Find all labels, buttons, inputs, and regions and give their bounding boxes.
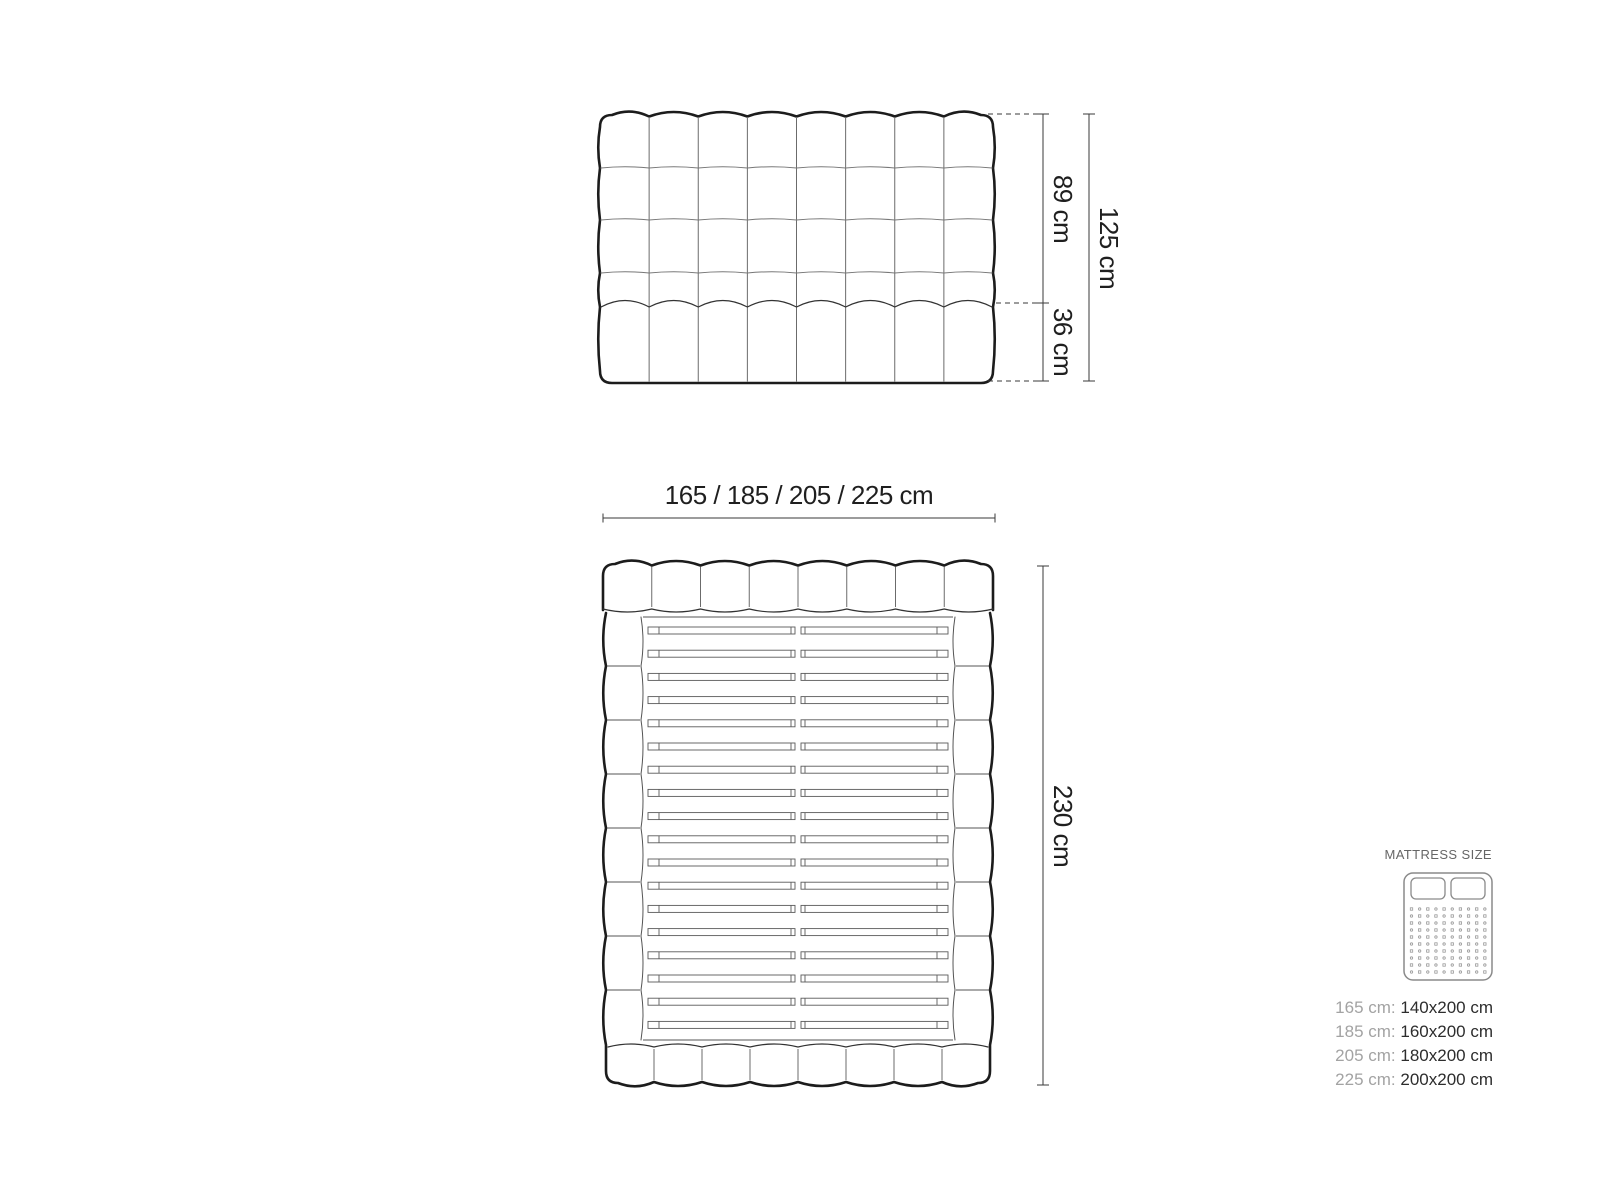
- dim-label-lower-height: 36 cm: [1048, 308, 1078, 376]
- frame-width-label: 165 cm:: [1335, 998, 1395, 1017]
- mattress-tufting-dots: [1410, 908, 1486, 973]
- mattress-size-row: 185 cm: 160x200 cm: [1300, 1020, 1493, 1044]
- headboard-front-view: [598, 112, 995, 383]
- dim-label-total-height: 125 cm: [1094, 207, 1124, 289]
- front-dimension-annotations: 89 cm 36 cm 125 cm: [988, 114, 1124, 381]
- frame-width-label: 225 cm:: [1335, 1070, 1395, 1089]
- dim-label-upper-height: 89 cm: [1048, 175, 1078, 243]
- dim-label-width-options: 165 / 185 / 205 / 225 cm: [665, 480, 933, 510]
- frame-width-label: 205 cm:: [1335, 1046, 1395, 1065]
- bed-top-view: [603, 561, 993, 1087]
- bed-dimensions-sheet: 89 cm 36 cm 125 cm 165 / 185 / 205 / 225…: [0, 0, 1600, 1200]
- mattress-size-row: 165 cm: 140x200 cm: [1300, 996, 1493, 1020]
- mattress-size-value: 160x200 cm: [1400, 1022, 1493, 1041]
- pillow-right-icon: [1451, 878, 1485, 899]
- mattress-size-row: 205 cm: 180x200 cm: [1300, 1044, 1493, 1068]
- pillow-left-icon: [1411, 878, 1445, 899]
- mattress-size-table: 165 cm: 140x200 cm 185 cm: 160x200 cm 20…: [1300, 996, 1493, 1092]
- mattress-size-value: 200x200 cm: [1400, 1070, 1493, 1089]
- frame-width-label: 185 cm:: [1335, 1022, 1395, 1041]
- mattress-size-value: 140x200 cm: [1400, 998, 1493, 1017]
- mattress-size-value: 180x200 cm: [1400, 1046, 1493, 1065]
- top-dimension-annotations: 165 / 185 / 205 / 225 cm 230 cm: [603, 480, 1078, 1085]
- mattress-size-row: 225 cm: 200x200 cm: [1300, 1068, 1493, 1092]
- mattress-icon: [1403, 872, 1493, 981]
- dim-label-length: 230 cm: [1048, 785, 1078, 867]
- mattress-size-title: MATTRESS SIZE: [1300, 848, 1493, 862]
- mattress-size-legend: MATTRESS SIZE 165 cm: 140x200 cm 185 cm:…: [1300, 848, 1493, 1092]
- mattress-outline: [1404, 873, 1492, 980]
